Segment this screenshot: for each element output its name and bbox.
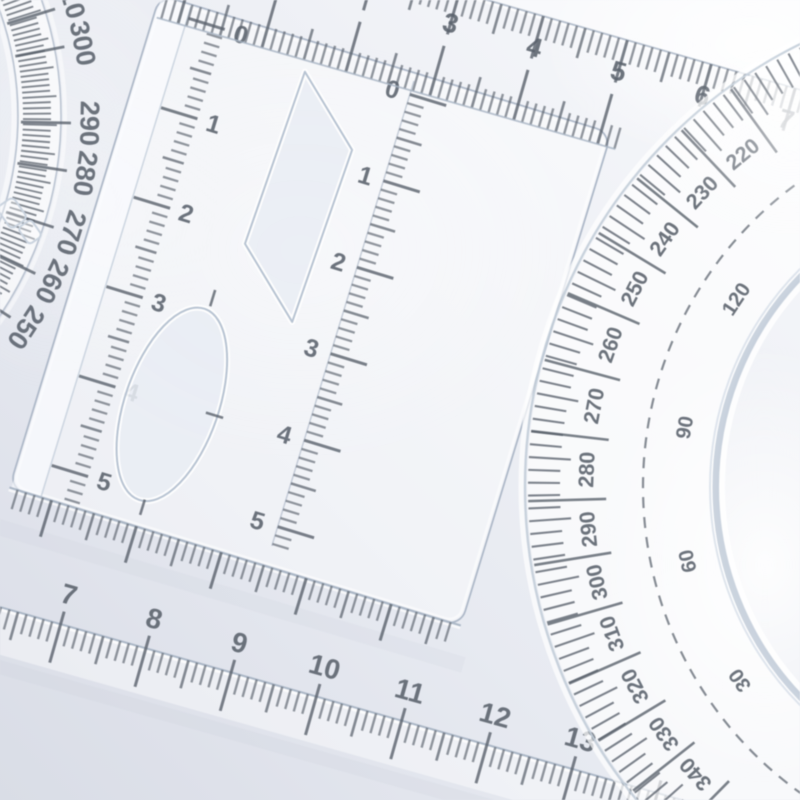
cm-number: 3 (439, 7, 462, 40)
mm-tick (470, 0, 476, 19)
degree-tick (23, 102, 51, 103)
degree-tick (23, 130, 51, 131)
cm-number: 7 (57, 578, 80, 612)
half-cm-tick (409, 0, 418, 10)
inner-degree-number: 90 (672, 414, 699, 440)
degree-tick (528, 495, 560, 496)
cm-number: 11 (392, 672, 429, 710)
degree-tick (23, 108, 51, 109)
outer-degree-number: 280 (574, 451, 599, 488)
major-degree-tick (21, 122, 71, 123)
cm-number: 9 (228, 626, 251, 660)
scene-photo: 7891011121310300290280270260250012345012… (0, 0, 800, 800)
degree-tick (23, 124, 57, 125)
degree-tick (528, 470, 560, 471)
half-cm-tick (171, 539, 179, 566)
mm-tick (462, 0, 468, 17)
mm-tick (420, 0, 426, 5)
mm-tick (504, 6, 510, 28)
cm-tick (40, 500, 51, 536)
mm-tick (487, 2, 493, 24)
cm-tick (363, 0, 375, 10)
half-cm-tick (425, 617, 433, 644)
half-cm-tick (341, 591, 349, 618)
mm-tick (428, 0, 434, 7)
mm-tick (520, 11, 526, 33)
degree-number: 290 (74, 101, 105, 147)
cm-number: 8 (143, 602, 166, 636)
cm-tick (125, 526, 136, 562)
mm-tick (512, 9, 518, 31)
half-cm-tick (86, 513, 94, 540)
half-cm-tick (256, 565, 264, 592)
outer-degree-number: 290 (575, 510, 602, 548)
degree-tick (528, 507, 560, 508)
mm-tick (478, 0, 484, 21)
ruler-set-photo: 7891011121310300290280270260250012345012… (0, 0, 800, 800)
cm-number: 12 (476, 696, 514, 734)
cm-number: 10 (306, 648, 344, 686)
half-cm-tick (493, 4, 502, 34)
mm-tick (436, 0, 442, 9)
